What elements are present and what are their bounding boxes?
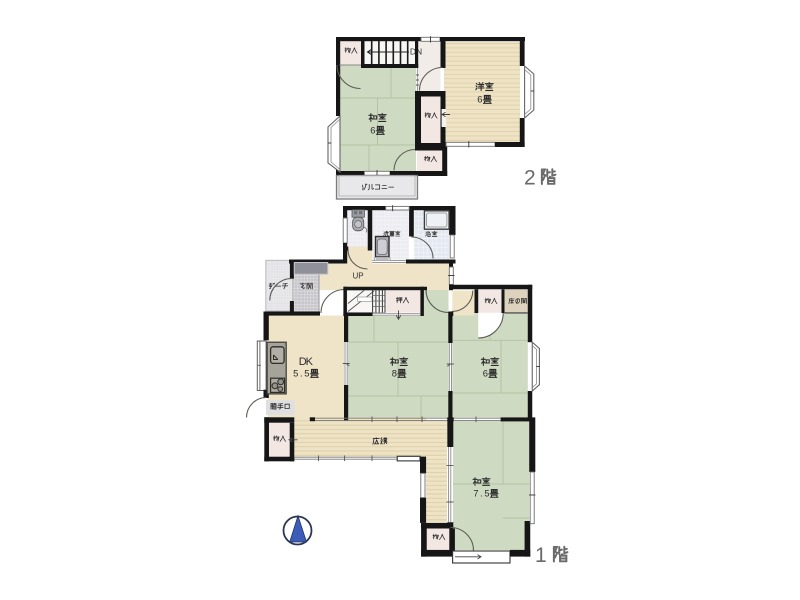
svg-text:5: 5	[293, 368, 298, 379]
svg-text:7: 7	[473, 489, 478, 499]
svg-text:1: 1	[535, 544, 547, 567]
svg-text:UP: UP	[352, 272, 363, 281]
svg-text:.: .	[300, 368, 303, 379]
svg-text:5: 5	[484, 489, 489, 499]
svg-text:2: 2	[524, 167, 536, 190]
svg-text:6: 6	[483, 368, 488, 379]
svg-text:8: 8	[392, 368, 397, 379]
svg-text:K: K	[306, 356, 314, 368]
svg-text:6: 6	[370, 125, 375, 136]
svg-text:6: 6	[477, 94, 482, 105]
svg-text:.: .	[480, 489, 483, 499]
svg-text:5: 5	[304, 368, 309, 379]
